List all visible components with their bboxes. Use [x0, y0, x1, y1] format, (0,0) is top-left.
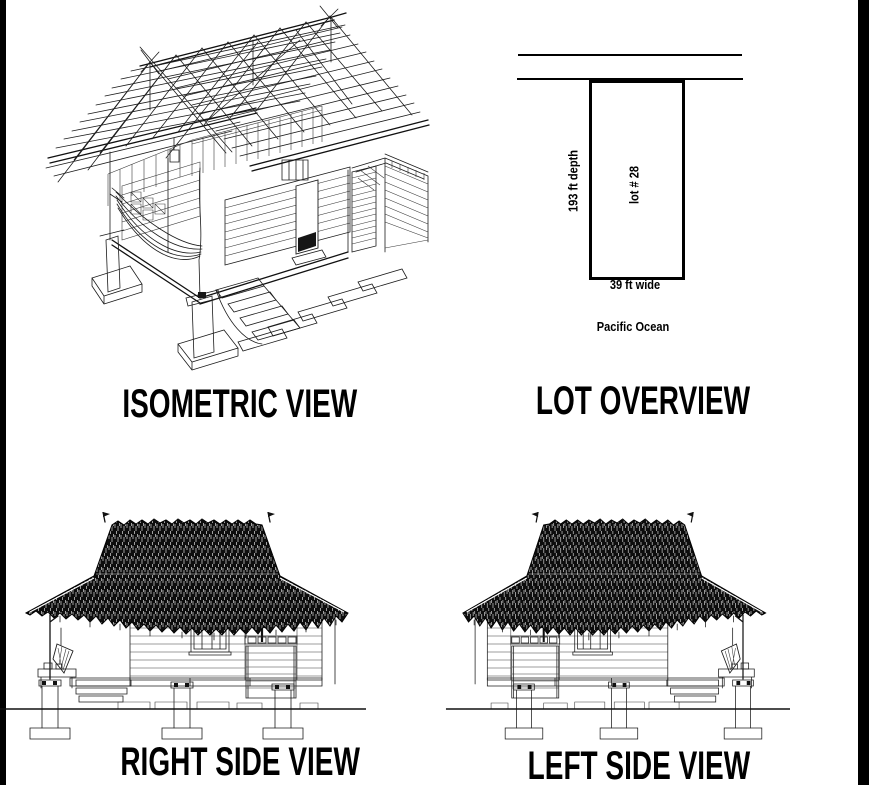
isometric-view-title: ISOMETRIC VIEW: [20, 384, 460, 424]
pier: [162, 682, 202, 739]
hammock: [110, 188, 202, 260]
drawing-sheet: { "sheet": { "paper_color": "#ffffff", "…: [0, 0, 869, 785]
isometric-shower-enclosure: [352, 154, 428, 252]
right-side-elevation: [0, 512, 366, 739]
road-line-top: [518, 54, 742, 56]
isometric-walls-siding: [122, 162, 376, 265]
isometric-drawing: [0, 0, 470, 382]
lot-overview-title: LOT OVERVIEW: [490, 381, 720, 421]
lot-width-label: 39 ft wide: [596, 277, 674, 292]
lot-depth-label: 193 ft depth: [566, 150, 581, 212]
isometric-roof-frame: [46, 6, 429, 182]
isometric-stairs: [216, 278, 300, 344]
side-elevation-drawings: [0, 512, 869, 762]
thatched-roof: [26, 512, 348, 640]
pier: [263, 684, 303, 739]
left-side-elevation: [446, 512, 790, 739]
lot-number-label: lot # 28: [627, 166, 642, 204]
ocean-label: Pacific Ocean: [581, 319, 685, 334]
